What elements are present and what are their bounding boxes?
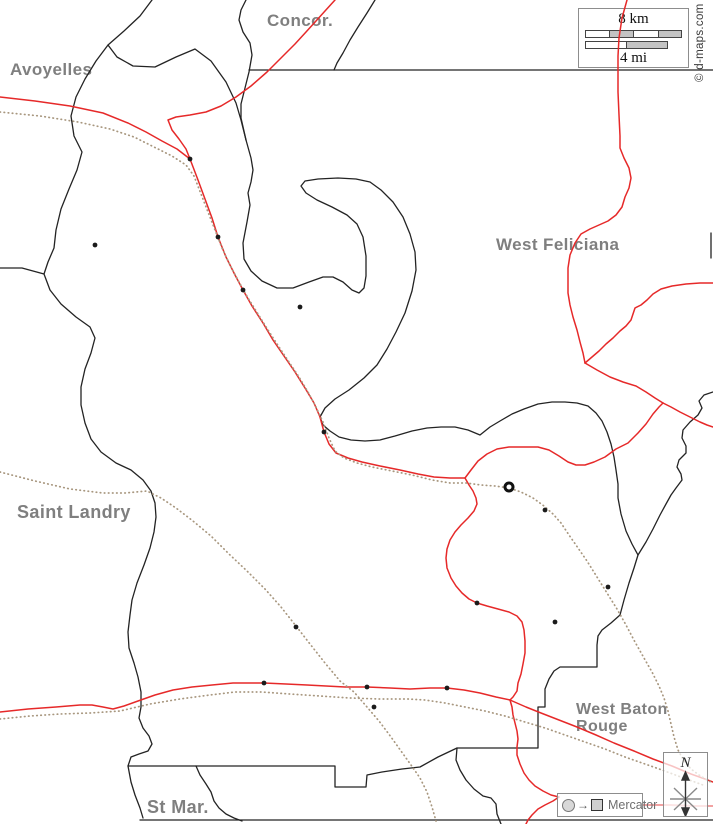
compass-rose: N xyxy=(663,752,708,817)
globe-circle-icon xyxy=(562,799,575,812)
town-dot xyxy=(553,620,558,625)
boundary-south-survey-line xyxy=(128,748,457,787)
town-dot xyxy=(475,601,480,606)
town-dot xyxy=(606,585,611,590)
railway-landry-diagonal xyxy=(0,472,436,821)
parish-seat-marker xyxy=(505,483,513,491)
road-junction-link xyxy=(585,363,663,403)
town-dot xyxy=(241,288,246,293)
road-river-north xyxy=(568,0,631,363)
boundary-top-left-wave xyxy=(108,0,246,140)
railway-la1 xyxy=(0,112,713,783)
road-la10-east xyxy=(465,403,663,478)
road-newroads-meander xyxy=(446,478,525,700)
boundary-west-river xyxy=(44,45,156,818)
town-dot xyxy=(294,625,299,630)
town-dot xyxy=(322,430,327,435)
road-la1-diagonal xyxy=(190,159,465,478)
town-dot xyxy=(365,685,370,690)
town-dot xyxy=(93,243,98,248)
boundary-stmartin-branch xyxy=(196,766,242,821)
arrow-icon: → xyxy=(577,799,589,811)
town-dot xyxy=(262,681,267,686)
town-dot xyxy=(216,235,221,240)
copyright-text: © d-maps.com xyxy=(694,3,706,82)
road-west-avoyelles xyxy=(0,97,190,159)
boundary-west-edge-stub xyxy=(0,268,44,274)
map-canvas xyxy=(0,0,713,824)
road-meander-south xyxy=(510,700,559,824)
north-arrow-icon xyxy=(664,753,707,816)
town-dot xyxy=(298,305,303,310)
projection-legend: → Mercator xyxy=(557,793,643,817)
road-east-feliciana xyxy=(585,283,713,363)
town-dot xyxy=(445,686,450,691)
town-dot xyxy=(188,157,193,162)
map-stage: 8 km 4 mi Avoyelles Concor. West Felicia… xyxy=(0,0,713,824)
projection-name: Mercator xyxy=(608,798,657,812)
road-la1-north xyxy=(168,0,335,159)
railway-us190 xyxy=(0,692,703,785)
boundary-center-river-oxbow xyxy=(243,140,638,555)
projection-square-icon xyxy=(591,799,603,811)
town-dot xyxy=(372,705,377,710)
town-dot xyxy=(543,508,548,513)
boundary-north-diagonal xyxy=(334,0,375,70)
road-us190-south xyxy=(0,683,713,782)
